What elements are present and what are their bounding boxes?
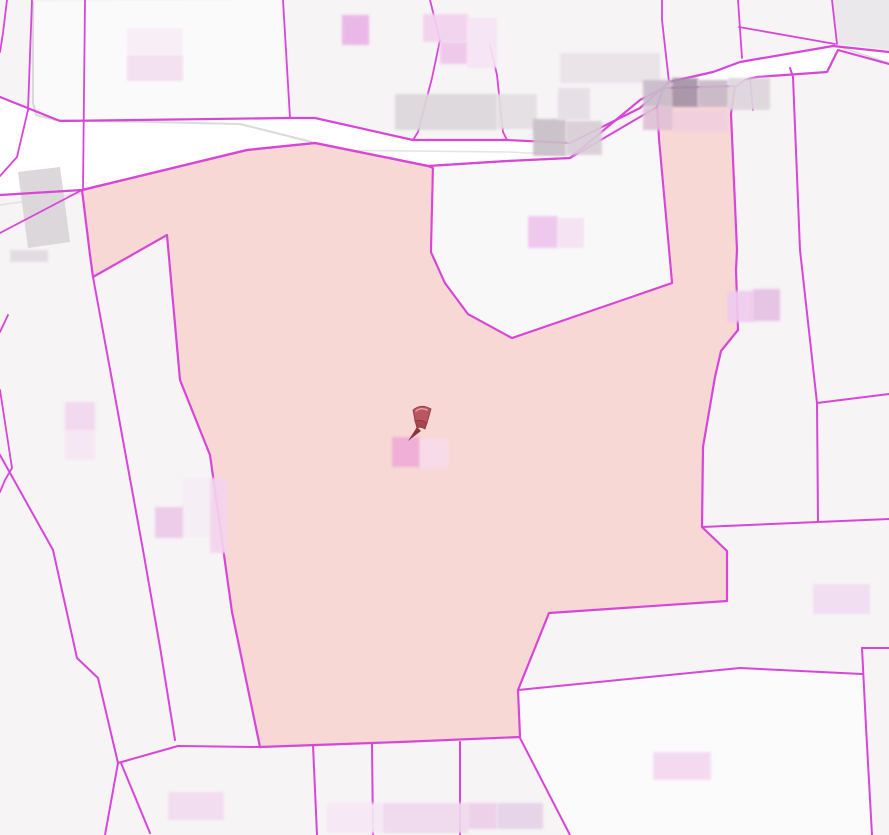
blurred-label-34 (327, 803, 383, 833)
blurred-label-16 (728, 78, 770, 110)
blurred-label-37 (497, 803, 543, 829)
blurred-label-20 (558, 218, 584, 248)
blurred-label-30 (753, 289, 780, 321)
blurred-label-1 (127, 28, 183, 55)
blurred-label-17 (643, 107, 673, 130)
blurred-label-7 (395, 94, 497, 130)
blurred-label-31 (813, 584, 870, 614)
blurred-label-6 (467, 18, 497, 68)
blurred-label-29 (727, 291, 754, 322)
blurred-label-12 (558, 88, 590, 120)
blurred-label-13 (643, 80, 672, 107)
blurred-label-24 (182, 478, 210, 537)
map-canvas[interactable] (0, 0, 889, 835)
blurred-label-19 (528, 216, 558, 248)
blurred-label-10 (566, 121, 602, 155)
blurred-label-3 (342, 15, 369, 45)
blurred-label-8 (497, 94, 537, 129)
blurred-label-15 (698, 80, 728, 107)
blurred-label-25 (155, 507, 183, 538)
blurred-label-22 (65, 402, 95, 432)
blurred-label-5 (440, 42, 468, 64)
blurred-label-21 (10, 250, 48, 262)
blurred-label-28 (420, 439, 448, 468)
blurred-label-26 (210, 478, 227, 553)
blurred-label-35 (383, 803, 468, 833)
blurred-label-11 (560, 53, 660, 83)
blurred-label-36 (468, 803, 497, 829)
blurred-label-33 (168, 792, 224, 820)
blurred-label-27 (392, 437, 420, 467)
map-view[interactable] (0, 0, 889, 835)
blurred-label-14 (672, 78, 698, 107)
blurred-label-9 (533, 119, 566, 156)
blurred-label-23 (65, 430, 95, 460)
parcel-bottom-large (518, 668, 871, 835)
blurred-label-32 (653, 752, 711, 780)
blurred-label-18 (673, 110, 728, 132)
parcel-northeast-corner (833, 0, 889, 50)
blurred-label-2 (127, 55, 183, 81)
blurred-label-4 (423, 14, 468, 42)
